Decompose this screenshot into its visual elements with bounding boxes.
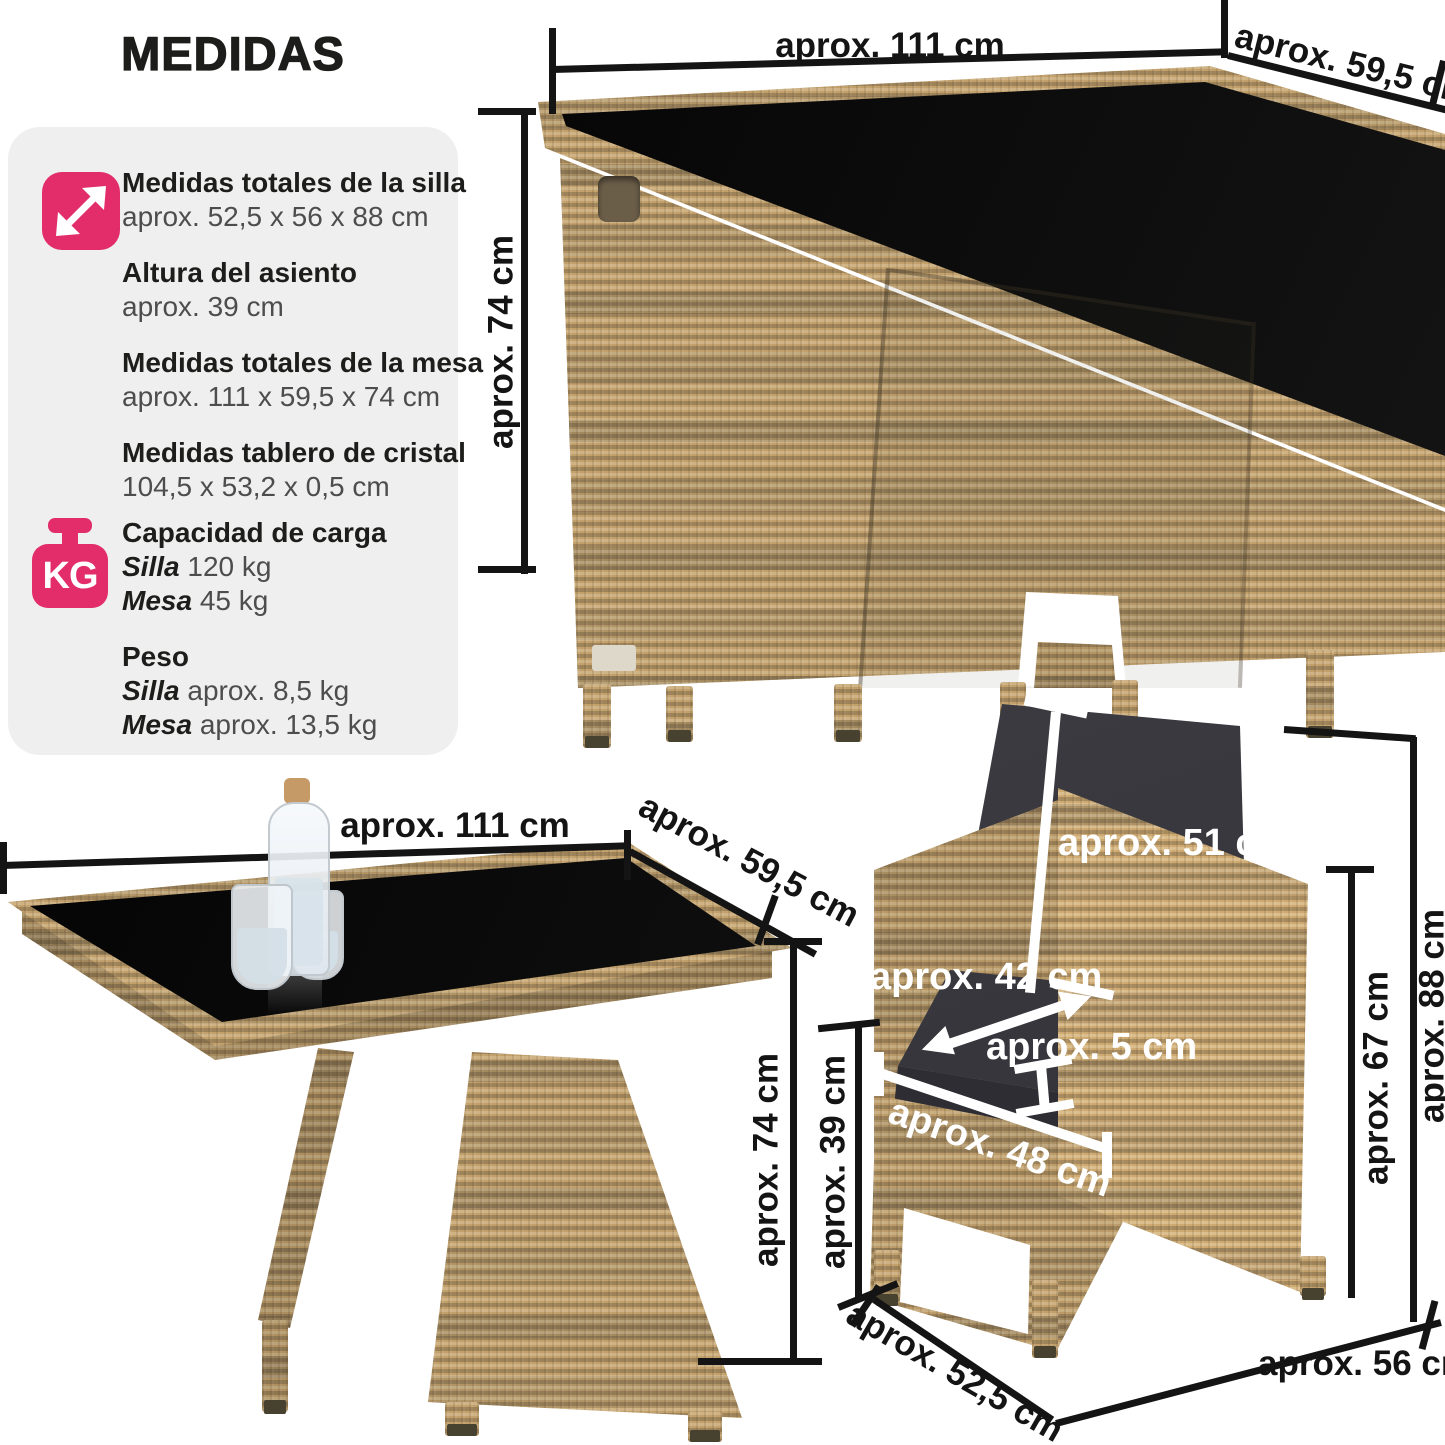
spec-heading-weight: Peso (122, 642, 189, 673)
set-height-tick-bottom (478, 566, 536, 573)
chair-total-height-tick-top (1284, 726, 1416, 742)
kg-icon-text: KG (43, 555, 98, 597)
page-title: MEDIDAS (8, 26, 458, 81)
spec-value-chair-size: aprox. 52,5 x 56 x 88 cm (122, 202, 429, 233)
table-width-tick-left (0, 842, 7, 894)
capacity-chair-label: Silla (122, 551, 180, 582)
chair-base-depth-label: aprox. 56 cm (1258, 1346, 1445, 1381)
weight-table-value: aprox. 13,5 kg (200, 709, 377, 740)
set-leg-cap (585, 736, 609, 748)
chair-seat-height-line (855, 1026, 862, 1298)
infographic-canvas: MEDIDAS Medidas totales de la silla apro… (0, 0, 1445, 1445)
chair-seat-height-tick-top (818, 1019, 880, 1032)
spec-heading-capacity: Capacidad de carga (122, 518, 387, 549)
table-height-line (790, 942, 797, 1364)
set-brand-tag (592, 645, 636, 671)
water-glass-front (231, 884, 293, 990)
spec-value-seat-height: aprox. 39 cm (122, 292, 284, 323)
set-width-tick-right (1221, 0, 1228, 58)
set-height-tick-top (478, 108, 536, 115)
spec-heading-chair-size: Medidas totales de la silla (122, 168, 466, 199)
weight-row-table: Mesa aprox. 13,5 kg (122, 710, 377, 741)
spec-value-table-size: aprox. 111 x 59,5 x 74 cm (122, 382, 440, 413)
chair-armrest-height-tick-top (1326, 866, 1374, 873)
dimensions-icon (42, 172, 120, 250)
set-leg-cap (836, 730, 860, 742)
chair-total-height-label: aprox. 88 cm (1415, 909, 1445, 1123)
weight-chair-value: aprox. 8,5 kg (187, 675, 349, 706)
table-height-label: aprox. 74 cm (749, 1053, 784, 1267)
water-glass-front-water (237, 928, 287, 984)
bottle-cork (284, 778, 310, 804)
chair-armrest-height-label: aprox. 67 cm (1359, 971, 1394, 1185)
table-height-tick-top (764, 938, 822, 945)
chair-backrest-label: aprox. 51 cm (1058, 824, 1290, 862)
set-height-line (521, 112, 528, 574)
capacity-row-chair: Silla 120 kg (122, 552, 271, 583)
kg-icon-body: KG (32, 544, 108, 608)
chair-leg-right-cap (1302, 1288, 1324, 1300)
set-height-label: aprox. 74 cm (484, 235, 519, 449)
chair-armrest-height-line (1348, 870, 1355, 1298)
table-foot-right-cap (690, 1430, 720, 1442)
set-width-tick-left (549, 28, 556, 114)
capacity-table-value: 45 kg (200, 585, 269, 616)
chair-seat-depth-label: aprox. 42 cm (870, 958, 1102, 996)
set-handle-hole (598, 176, 640, 222)
diagonal-arrows-icon (42, 172, 120, 250)
chair-cushion-label: aprox. 5 cm (986, 1028, 1197, 1066)
weight-table-label: Mesa (122, 709, 192, 740)
weight-chair-label: Silla (122, 675, 180, 706)
spec-heading-glass-size: Medidas tablero de cristal (122, 438, 466, 469)
capacity-table-label: Mesa (122, 585, 192, 616)
weight-row-chair: Silla aprox. 8,5 kg (122, 676, 349, 707)
capacity-row-table: Mesa 45 kg (122, 586, 268, 617)
set-width-label: aprox. 111 cm (665, 28, 1115, 63)
chair-seat-width-serif-left (874, 1052, 884, 1096)
set-leg-cap (668, 730, 691, 742)
spec-heading-table-size: Medidas totales de la mesa (122, 348, 483, 379)
spec-value-glass-size: 104,5 x 53,2 x 0,5 cm (122, 472, 390, 503)
capacity-chair-value: 120 kg (187, 551, 271, 582)
set-leg (1306, 650, 1334, 738)
chair-seat-height-label: aprox. 39 cm (816, 1055, 851, 1269)
table-back-foot (262, 1320, 288, 1412)
table-foot-left-cap (447, 1424, 477, 1436)
spec-heading-seat-height: Altura del asiento (122, 258, 357, 289)
table-back-foot-cap (264, 1400, 286, 1414)
kg-weight-icon: KG (32, 518, 108, 608)
chair-leg-center-cap (1034, 1346, 1056, 1358)
table-height-tick-bottom (698, 1358, 822, 1365)
